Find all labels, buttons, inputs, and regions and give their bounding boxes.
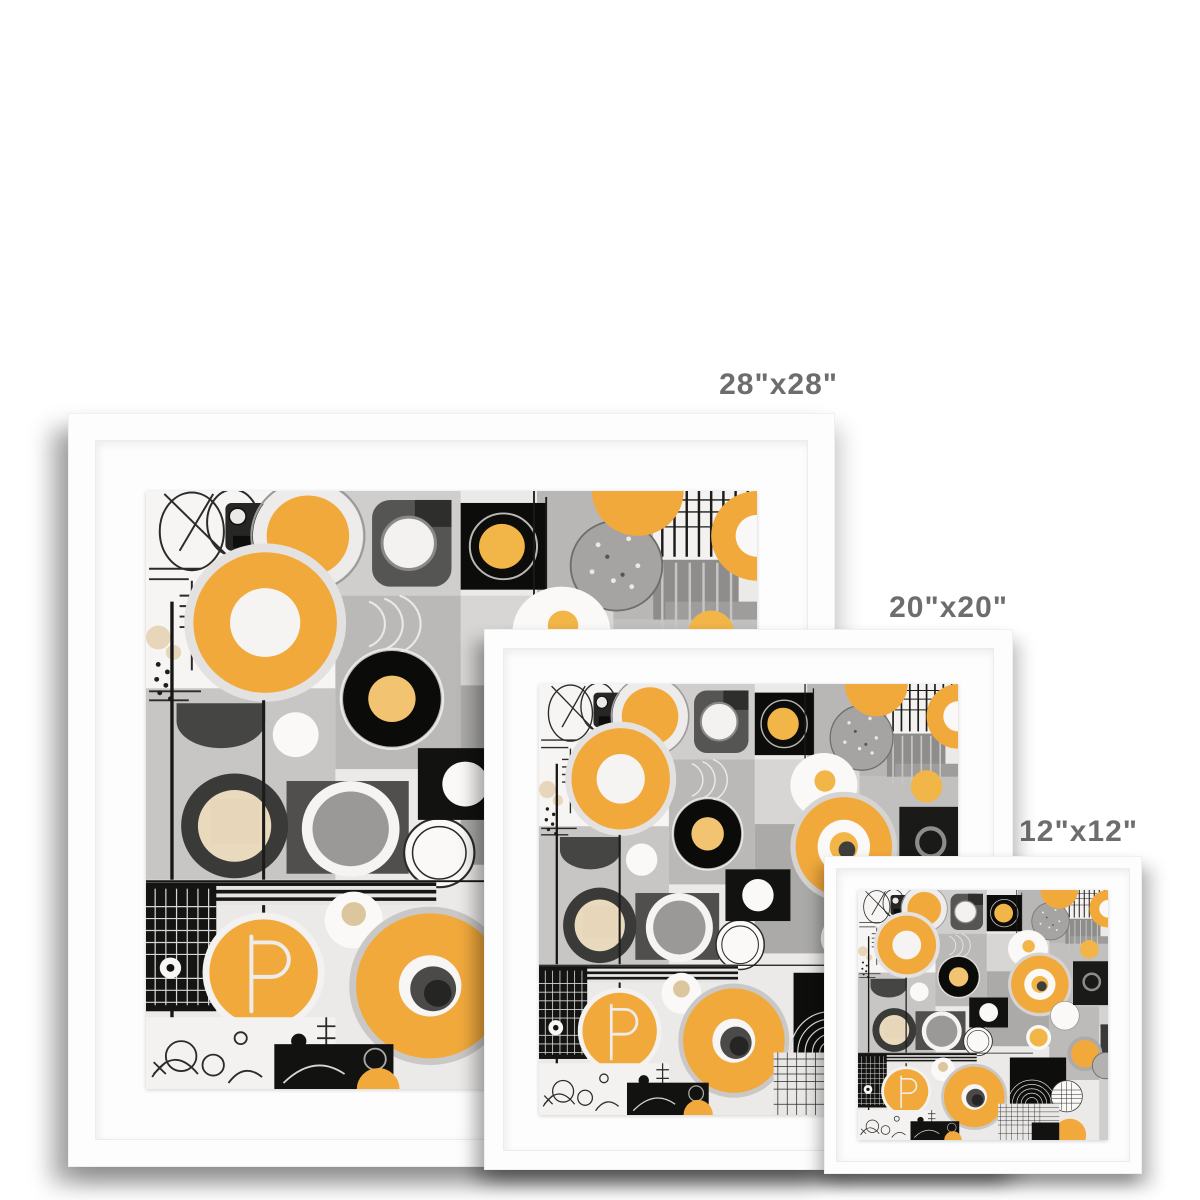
size-label-12x12: 12"x12" — [1019, 817, 1138, 847]
frame-mat-12x12 — [836, 868, 1130, 1162]
abstract-artwork — [858, 890, 1108, 1140]
framed-print-12x12 — [824, 856, 1142, 1174]
product-mockup-stage: 28"x28" 20"x20" 12"x12" — [0, 0, 1200, 1200]
artwork-12x12 — [858, 890, 1108, 1140]
size-label-28x28: 28"x28" — [719, 370, 838, 400]
size-label-20x20: 20"x20" — [889, 593, 1008, 623]
